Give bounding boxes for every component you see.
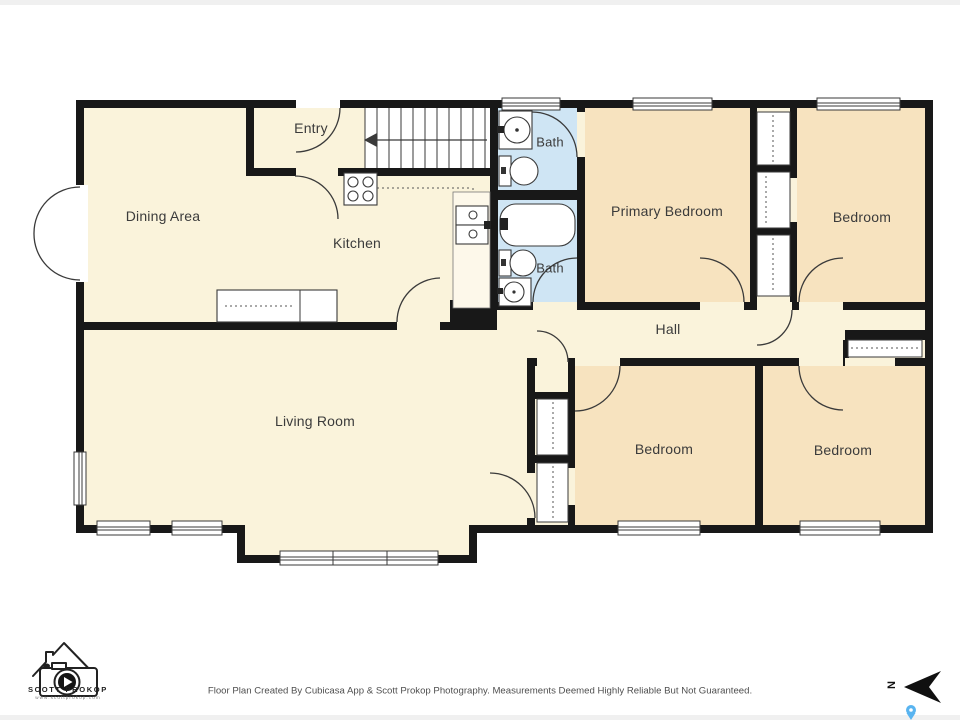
- sink-icon: [497, 278, 531, 306]
- window: [618, 521, 700, 535]
- window: [633, 98, 712, 110]
- french-door-arc-bottom: [34, 233, 80, 280]
- toilet-icon: [499, 250, 536, 276]
- room-label-hall: Hall: [656, 321, 681, 337]
- bay-window: [280, 551, 438, 565]
- room-label-primary-bedroom: Primary Bedroom: [611, 203, 723, 219]
- french-door-arc-top: [34, 187, 80, 233]
- window: [97, 521, 150, 535]
- floor-plan-drawing: [0, 0, 960, 720]
- floor-plan-page: Dining Area Entry Kitchen Bath Bath Prim…: [0, 0, 960, 720]
- room-label-entry: Entry: [294, 120, 328, 136]
- room-label-bath-top: Bath: [536, 135, 564, 150]
- toilet-icon: [499, 156, 538, 186]
- bathtub-icon: [500, 204, 575, 246]
- footer-disclaimer: Floor Plan Created By Cubicasa App & Sco…: [208, 686, 752, 697]
- room-label-bedroom-bottom-left: Bedroom: [635, 441, 693, 457]
- logo-url-text: www.scottprokop.com: [26, 695, 110, 700]
- kitchen-sink-icon: [456, 206, 491, 244]
- window: [502, 98, 560, 110]
- room-label-bedroom-bottom-right: Bedroom: [814, 442, 872, 458]
- room-label-kitchen: Kitchen: [333, 235, 381, 251]
- map-pin-icon: [906, 705, 916, 720]
- room-label-bath-bottom: Bath: [536, 261, 564, 276]
- kitchen-island: [217, 290, 337, 322]
- north-arrow-icon: [904, 671, 941, 703]
- window: [74, 452, 86, 505]
- logo-name-text: SCOTT PROKOP: [26, 685, 110, 694]
- room-label-dining: Dining Area: [126, 208, 201, 224]
- window: [817, 98, 900, 110]
- room-label-bedroom-top-right: Bedroom: [833, 209, 891, 225]
- north-label: N: [886, 681, 898, 689]
- window: [800, 521, 880, 535]
- room-label-living: Living Room: [275, 413, 355, 429]
- stove-icon: [344, 173, 377, 205]
- sink-icon: [497, 111, 532, 149]
- window: [172, 521, 222, 535]
